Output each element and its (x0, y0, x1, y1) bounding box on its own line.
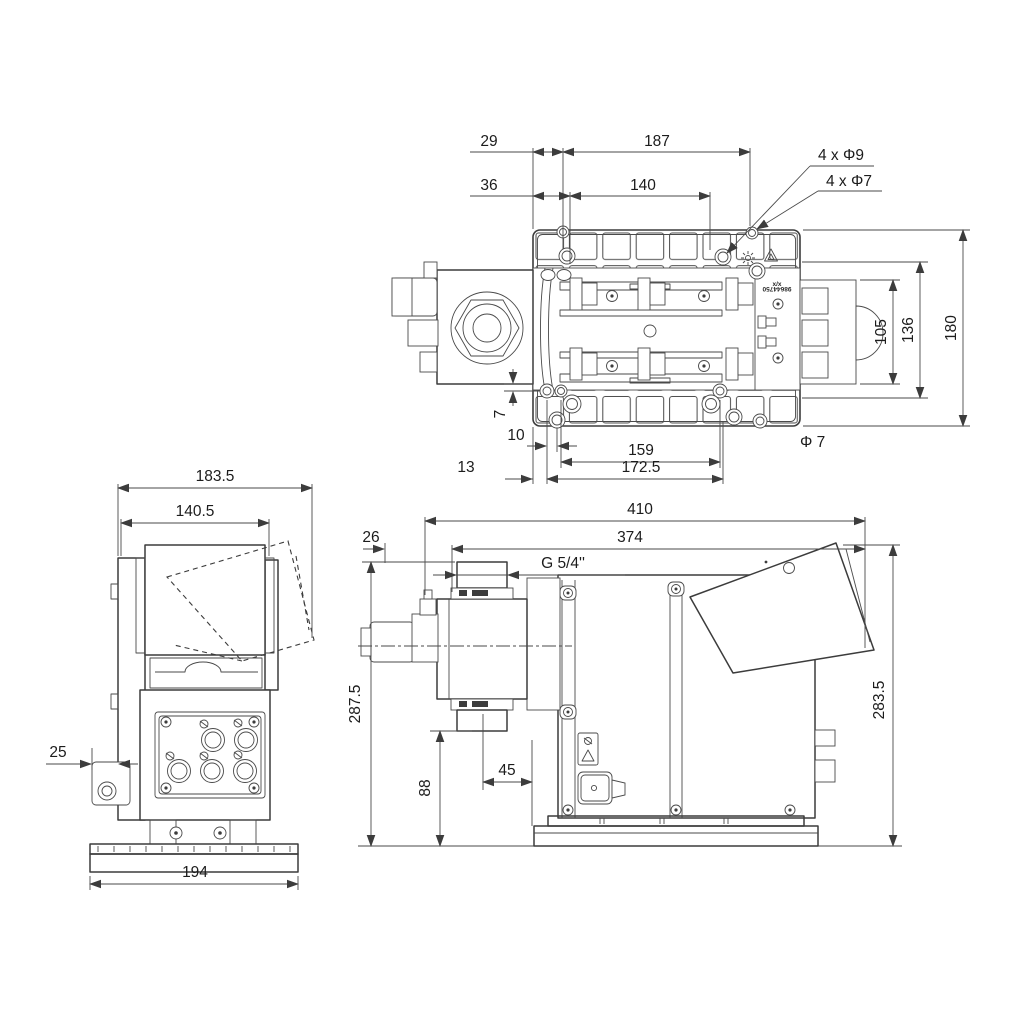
dim-45: 45 (498, 762, 515, 779)
dim-29: 29 (480, 133, 497, 150)
dosing-head-top (392, 262, 533, 384)
dim-25: 25 (49, 744, 66, 761)
dim-88: 88 (417, 779, 434, 796)
dim-105: 105 (873, 319, 890, 345)
drawing-canvas: x/x 98644750 (0, 0, 1024, 1024)
label-phi7: Φ 7 (800, 434, 825, 451)
dim-187: 187 (644, 133, 670, 150)
base-plate-side (534, 816, 818, 846)
nameplate-line2: 98644750 (762, 285, 791, 292)
dim-194: 194 (182, 864, 208, 881)
dim-172.5: 172.5 (622, 459, 661, 476)
dim-287.5: 287.5 (347, 685, 364, 724)
top-view: x/x 98644750 (392, 133, 970, 484)
dim-13: 13 (457, 459, 474, 476)
front-body (90, 541, 314, 872)
dimensional-drawing: x/x 98644750 (0, 0, 1024, 1024)
leader-4xphi9: 4 x Φ9 (818, 147, 864, 164)
front-view: 183.5 140.5 25 194 (46, 468, 314, 890)
dim-374: 374 (617, 529, 643, 546)
side-view: 410 374 26 G 5/4'' 287.5 88 45 283.5 (347, 501, 902, 846)
dim-136: 136 (900, 317, 917, 343)
dim-140.5: 140.5 (176, 503, 215, 520)
dim-26: 26 (362, 529, 379, 546)
front-view-dimensions: 183.5 140.5 25 194 (46, 468, 312, 890)
dim-10: 10 (507, 427, 525, 444)
dim-159: 159 (628, 442, 654, 459)
connector-plate (155, 712, 265, 798)
leader-4xphi7: 4 x Φ7 (826, 173, 872, 190)
dim-36: 36 (480, 177, 497, 194)
dim-7: 7 (492, 410, 509, 419)
dim-180: 180 (943, 315, 960, 341)
mount-ear (92, 762, 130, 805)
dosing-head-side (358, 562, 572, 731)
dim-283.5: 283.5 (871, 681, 888, 720)
motor-top (800, 280, 883, 384)
label-g54: G 5/4'' (541, 555, 585, 572)
warning-sticker (578, 733, 598, 765)
dim-140: 140 (630, 177, 656, 194)
dim-410: 410 (627, 501, 653, 518)
dim-183.5: 183.5 (196, 468, 235, 485)
